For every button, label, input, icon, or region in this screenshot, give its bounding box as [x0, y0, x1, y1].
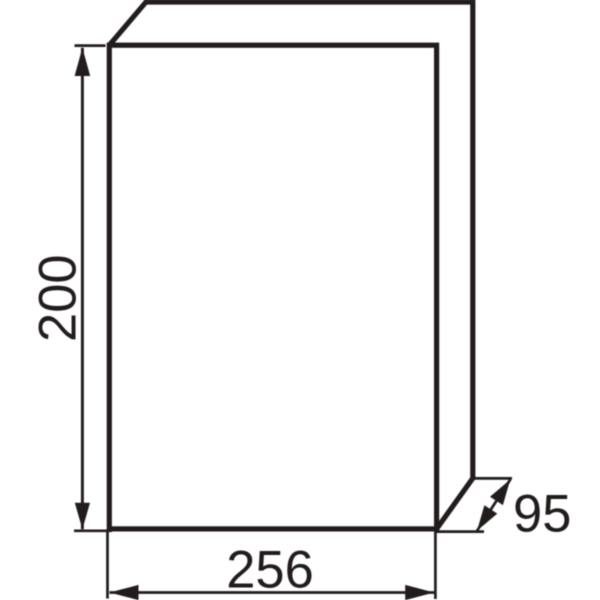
svg-text:256: 256	[226, 541, 314, 600]
svg-text:200: 200	[29, 254, 88, 342]
svg-text:95: 95	[513, 485, 571, 544]
